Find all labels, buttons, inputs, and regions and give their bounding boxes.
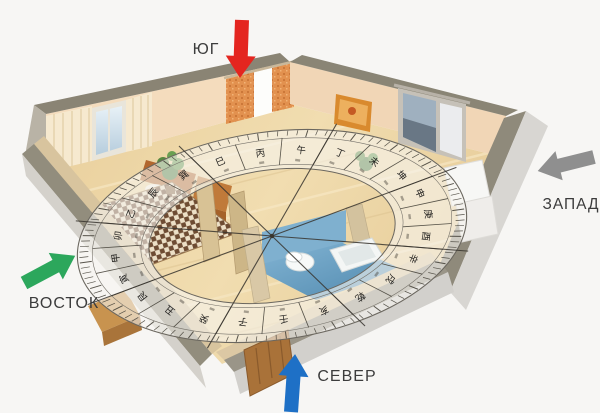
- ring-character: 午: [296, 144, 307, 157]
- feng-shui-floorplan-scene: 丙午丁未坤申庚酉辛戌乾亥壬子癸丑艮寅甲卯乙辰巽巳 ЮГ ЗАПАД ВОСТОК…: [0, 0, 600, 413]
- scene-canvas: 丙午丁未坤申庚酉辛戌乾亥壬子癸丑艮寅甲卯乙辰巽巳 ЮГ ЗАПАД ВОСТОК…: [0, 0, 600, 413]
- west-label: ЗАПАД: [542, 196, 599, 213]
- ring-character: 酉: [419, 231, 431, 242]
- ring-character: 丙: [255, 148, 266, 160]
- ring-character: 子: [237, 315, 248, 327]
- ring-character: 卯: [113, 230, 125, 241]
- east-label: ВОСТОК: [29, 295, 99, 312]
- ring-character: 甲: [110, 252, 122, 263]
- balcony-sheer-curtain: [440, 103, 462, 158]
- south-label: ЮГ: [193, 41, 220, 58]
- north-label: СЕВЕР: [317, 368, 376, 385]
- bedroom-window: [92, 100, 126, 161]
